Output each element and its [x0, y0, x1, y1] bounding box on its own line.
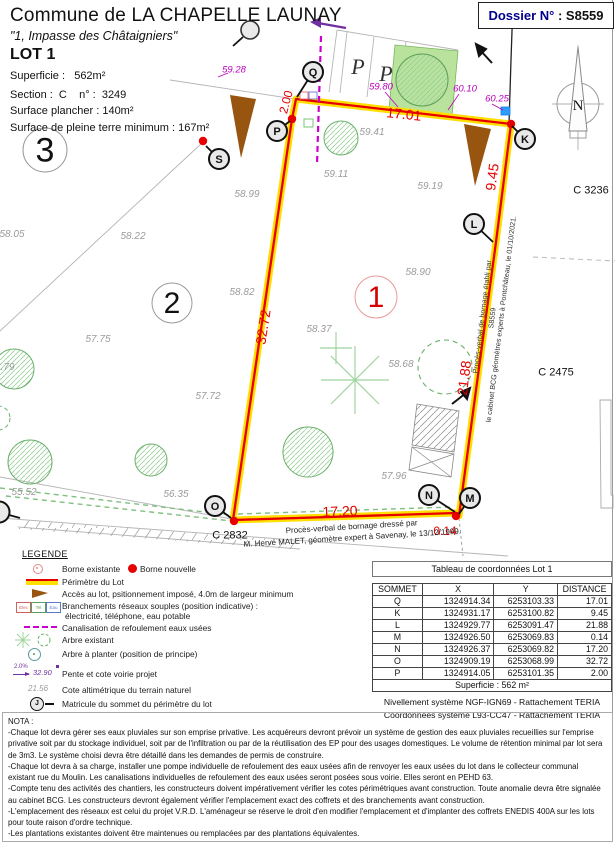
nota-paragraph: -Chaque lot devra à sa charge, installer… — [8, 761, 607, 783]
coord-value: 1324926.37 — [422, 644, 493, 656]
nota-section: NOTA : -Chaque lot devra gérer ses eaux … — [2, 712, 613, 842]
coord-value: 0.14 — [558, 632, 612, 644]
dossier-value: : S8559 — [554, 8, 603, 23]
nota-paragraph: -Les plantations existantes doivent être… — [8, 828, 607, 839]
coord-value: 32.72 — [558, 656, 612, 668]
page-title: Commune de LA CHAPELLE LAUNAY — [10, 5, 342, 27]
coord-sommet: M — [373, 632, 423, 644]
vertex-letter-N: N — [425, 490, 433, 502]
coord-value: 6253100.82 — [494, 608, 558, 620]
cote-sample-value: 21.56 — [28, 684, 48, 693]
surface-plancher-line: Surface plancher : 140m² — [10, 105, 134, 117]
legend-label: électricité, téléphone, eau potable — [65, 611, 190, 621]
lot-number-2: 2 — [164, 287, 181, 320]
division-dashed — [533, 257, 615, 261]
legend-label: Borne existante — [62, 564, 120, 574]
arbre-planter-icon — [28, 648, 41, 661]
tree-icon — [8, 440, 52, 484]
pente-value: 32.90 — [33, 668, 52, 677]
coord-col-distance: DISTANCE — [558, 584, 612, 596]
coord-sommet: N — [373, 644, 423, 656]
tree-icon — [396, 54, 448, 106]
coordinates-table-title: Tableau de coordonnées Lot 1 — [372, 561, 612, 577]
acces-arrow-icon — [32, 589, 48, 598]
compass-rose: N — [552, 45, 604, 150]
coord-value: 6253069.83 — [494, 632, 558, 644]
blue-box-icon — [501, 107, 510, 115]
legend-label: Branchements réseaux souples (position i… — [62, 601, 258, 611]
superficie-line: Superficie : 562m² — [10, 70, 105, 82]
elec-box-icon — [300, 92, 308, 99]
address-subtitle: "1, Impasse des Châtaigniers" — [10, 29, 177, 43]
coord-value: 1324926.50 — [422, 632, 493, 644]
vertex-letter-L: L — [471, 219, 478, 231]
legend-label: Borne nouvelle — [140, 564, 196, 574]
access-wedge-icon — [230, 95, 256, 158]
conifer-tree-icon — [320, 332, 389, 414]
nota-paragraph: -L'emplacement des réseaux est celui du … — [8, 806, 607, 828]
lot-number-3: 3 — [36, 132, 55, 170]
superficie-footer: Superficie : 562 m² — [373, 680, 612, 692]
coord-row-P: P1324914.056253101.352.00 — [373, 668, 612, 680]
pente-dot-icon — [56, 665, 59, 668]
vertex-letter-S: S — [215, 154, 222, 166]
lot-number-1: 1 — [368, 281, 385, 314]
coord-sommet: Q — [373, 596, 423, 608]
coord-value: 2.00 — [558, 668, 612, 680]
legend-row-branchements: Elec Tel Eau Branchements réseaux souple… — [0, 600, 370, 613]
lot-heading: LOT 1 — [10, 46, 55, 64]
vertex-letter-O: O — [211, 501, 220, 513]
coordinates-table: SOMMETXYDISTANCE Q1324914.346253103.3317… — [372, 583, 612, 692]
coord-value: 9.45 — [558, 608, 612, 620]
legend-row-arbre-existant: Arbre existant — [0, 634, 370, 647]
coordinates-footer-row: Superficie : 562 m² — [373, 680, 612, 692]
coordinates-block: Tableau de coordonnées Lot 1 SOMMETXYDIS… — [372, 561, 612, 720]
borne-nouvelle-marker — [199, 137, 207, 145]
dossier-number-box: Dossier N° : S8559 — [478, 2, 614, 29]
legend-row-pente: 2.0% 32.90 Pente et cote voirie projet — [0, 668, 370, 681]
borne-nouvelle-marker — [230, 517, 238, 525]
coord-sommet: O — [373, 656, 423, 668]
legend-title: LEGENDE — [22, 549, 68, 559]
nota-title: NOTA : — [8, 716, 607, 727]
legend-label: Pente et cote voirie projet — [62, 669, 157, 679]
coord-col-y: Y — [494, 584, 558, 596]
tree-icon — [324, 121, 358, 155]
structure-hatched — [409, 404, 459, 477]
legend-row-cote: 21.56 Cote altimétrique du terrain natur… — [0, 684, 370, 697]
legend-label: Périmètre du Lot — [62, 577, 124, 587]
vertex-letter-Q: Q — [309, 67, 318, 79]
legend-row-arbre-planter: Arbre à planter (position de principe) — [0, 648, 370, 661]
coord-value: 1324909.19 — [422, 656, 493, 668]
coord-row-K: K1324931.176253100.829.45 — [373, 608, 612, 620]
eau-box-icon: Eau — [46, 602, 61, 613]
legend-row-bornes: Borne existante Borne nouvelle — [0, 563, 370, 576]
coord-col-x: X — [422, 584, 493, 596]
coord-value: 1324914.34 — [422, 596, 493, 608]
coord-value: 6253091.47 — [494, 620, 558, 632]
legend-label: Matricule du sommet du périmètre du lot — [62, 699, 212, 709]
tel-box-icon — [304, 119, 313, 127]
compass-north-letter: N — [573, 98, 584, 114]
nota-paragraph: -Chaque lot devra gérer ses eaux pluvial… — [8, 727, 607, 761]
coord-sommet: L — [373, 620, 423, 632]
coord-value: 1324931.17 — [422, 608, 493, 620]
tree-to-plant-icon — [418, 340, 472, 394]
canalisation-icon — [24, 626, 57, 628]
vertex-letter-K: K — [521, 134, 529, 146]
coord-sommet: K — [373, 608, 423, 620]
coordinates-header-row: SOMMETXYDISTANCE — [373, 584, 612, 596]
nivellement-note: Nivellement système NGF-IGN69 - Rattache… — [372, 697, 612, 707]
tel-box-icon: Tel — [31, 602, 46, 613]
borne-existante-icon — [33, 564, 43, 574]
legend: LEGENDE Borne existante Borne nouvelle P… — [0, 545, 370, 713]
coord-col-sommet: SOMMET — [373, 584, 423, 596]
matricule-leader-icon — [45, 703, 54, 705]
legend-label: Accès au lot, psitionnement imposé, 4.0m… — [62, 589, 293, 599]
coord-value: 6253068.99 — [494, 656, 558, 668]
coord-value: 6253103.33 — [494, 596, 558, 608]
coord-row-M: M1324926.506253069.830.14 — [373, 632, 612, 644]
coord-value: 17.20 — [558, 644, 612, 656]
nota-paragraph: -Compte tenu des activités des chantiers… — [8, 783, 607, 805]
coord-row-Q: Q1324914.346253103.3317.01 — [373, 596, 612, 608]
access-wedge-icon — [464, 124, 491, 186]
eau-box-icon — [309, 92, 317, 99]
nota-paragraphs: -Chaque lot devra gérer ses eaux pluvial… — [8, 727, 607, 839]
pente-percent: 2.0% — [14, 664, 28, 670]
legend-label: Canalisation de refoulement eaux usées — [62, 623, 211, 633]
matricule-circle-icon: J — [30, 697, 44, 711]
coord-row-L: L1324929.776253091.4721.88 — [373, 620, 612, 632]
legend-row-matricule: J Matricule du sommet du périmètre du lo… — [0, 698, 370, 711]
legend-label: Arbre existant — [62, 635, 114, 645]
coord-value: 1324929.77 — [422, 620, 493, 632]
coord-value: 6253101.35 — [494, 668, 558, 680]
parking-bay-line — [329, 30, 337, 92]
coord-value: 1324914.05 — [422, 668, 493, 680]
tree-icon — [135, 444, 167, 476]
tree-icon — [0, 349, 34, 389]
legend-label: Cote altimétrique du terrain naturel — [62, 685, 191, 695]
arbre-existant-icon — [14, 632, 56, 648]
tree-icon — [283, 427, 333, 477]
coord-value: 21.88 — [558, 620, 612, 632]
vertex-letter-P: P — [273, 126, 280, 138]
legend-label: Arbre à planter (position de principe) — [62, 649, 197, 659]
tree-to-plant-icon — [0, 406, 10, 430]
section-line: Section : C n° : 3249 — [10, 89, 126, 101]
borne-nouvelle-icon — [128, 564, 137, 573]
dossier-label: Dossier N° — [488, 8, 554, 23]
neighbor-building — [600, 400, 613, 508]
coord-sommet: P — [373, 668, 423, 680]
coord-value: 6253069.82 — [494, 644, 558, 656]
coord-value: 17.01 — [558, 596, 612, 608]
vertex-letter-M: M — [465, 493, 474, 505]
elec-box-icon: Elec — [16, 602, 31, 613]
coord-row-N: N1324926.376253069.8217.20 — [373, 644, 612, 656]
perimetre-icon — [26, 579, 58, 585]
pente-arrow-icon — [13, 674, 29, 675]
pleine-terre-line: Surface de pleine terre minimum : 167m² — [10, 122, 209, 134]
parking-bay-line — [340, 32, 347, 93]
parking-bay-line — [367, 37, 374, 97]
survey-plan-page: N 321QPSKLMNO 59.4159.1159.1958.9958.055… — [0, 0, 615, 842]
coord-row-O: O1324909.196253068.9932.72 — [373, 656, 612, 668]
